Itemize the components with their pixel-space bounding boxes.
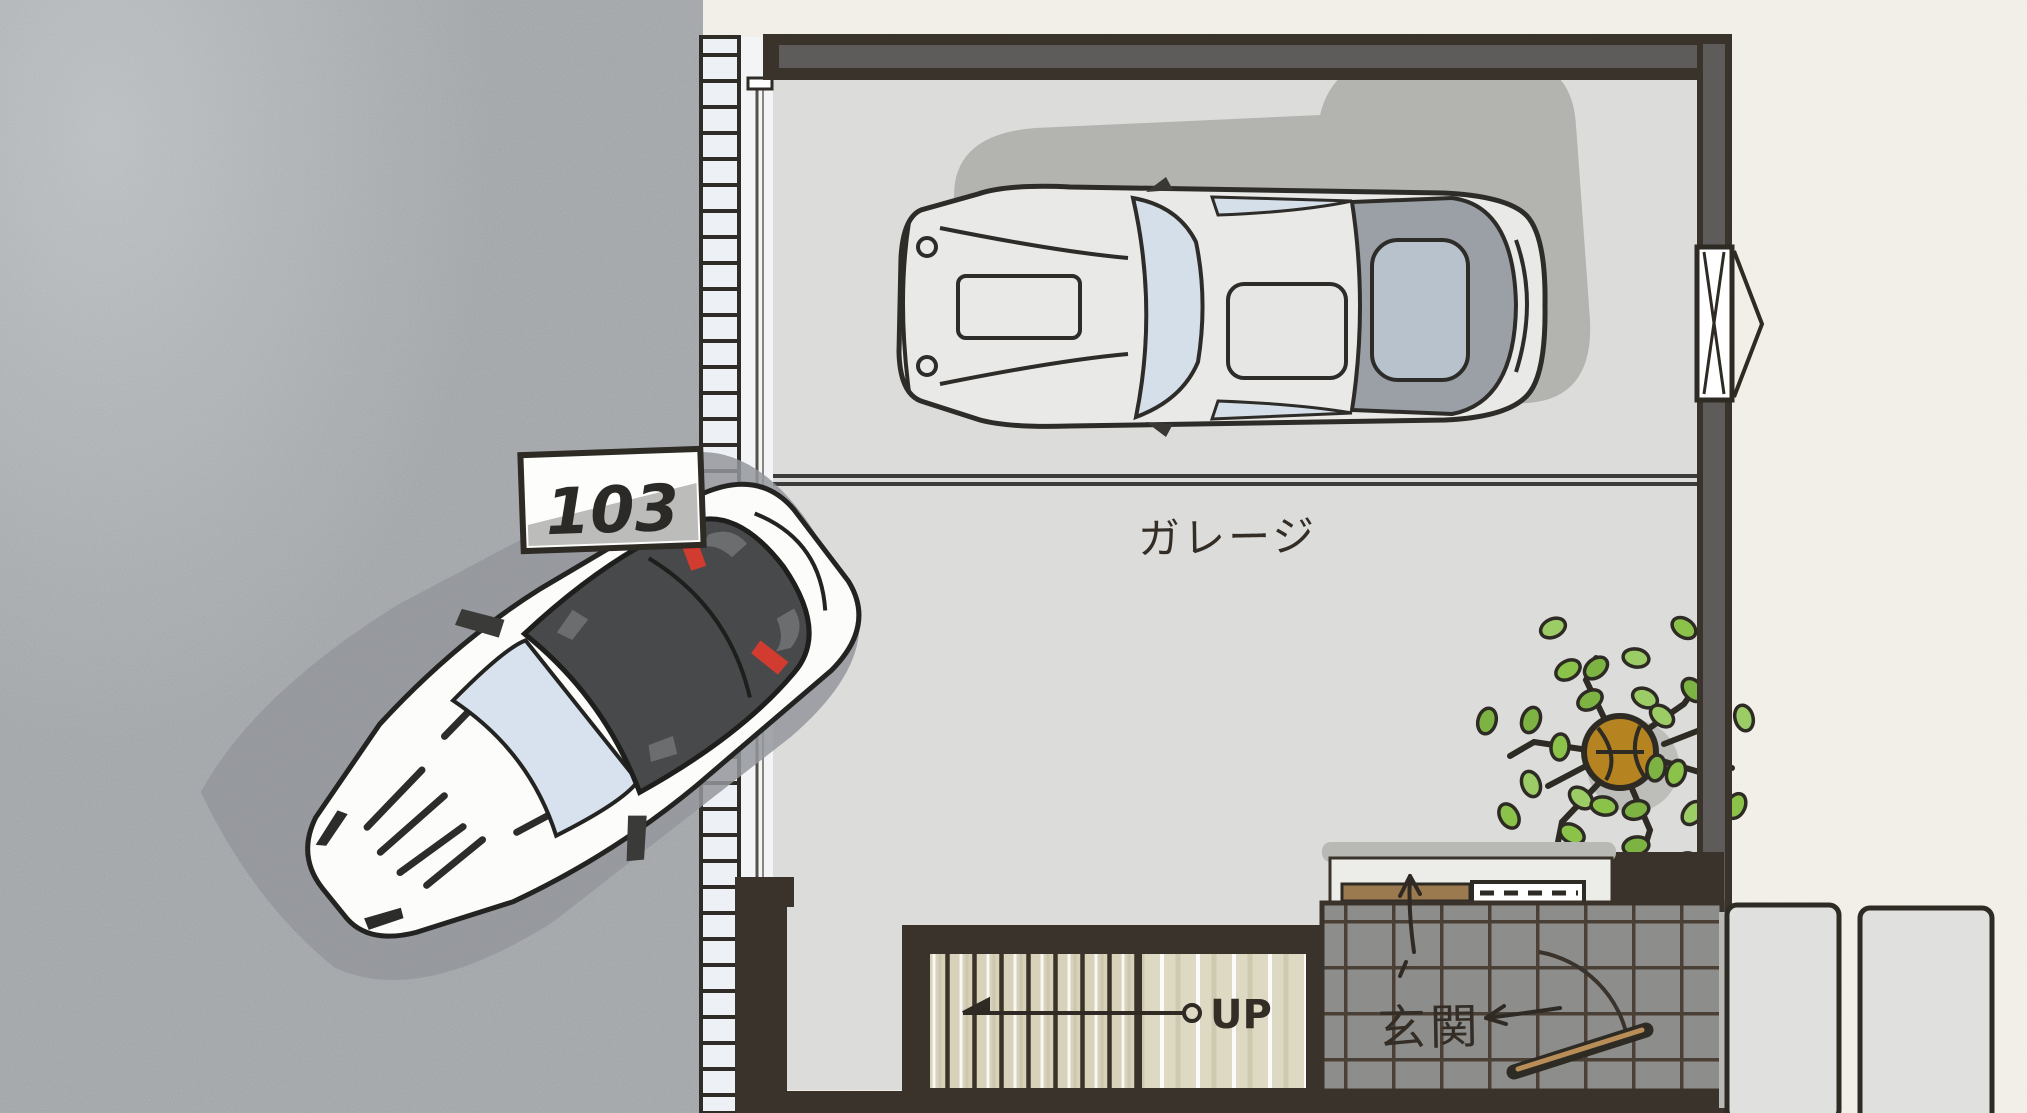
floor-plan-canvas: ガレージ — [0, 0, 2027, 1113]
stair-treads — [928, 952, 1140, 1090]
unit-number: 103 — [544, 472, 680, 551]
shoe-cabinet-threshold — [1330, 858, 1612, 904]
right-wall — [1697, 34, 1732, 926]
unit-number-sign: 103 — [520, 449, 703, 551]
stairs-up: UP — [902, 925, 1330, 1113]
garage-label: ガレージ — [1138, 511, 1318, 563]
stepping-stone — [1727, 905, 1839, 1113]
lower-left-wall — [735, 877, 794, 1113]
floor-plan-illustration: ガレージ — [0, 0, 2027, 1113]
top-wall — [763, 34, 1732, 80]
up-label: UP — [1210, 992, 1272, 1038]
entrance-label: 玄関 — [1377, 999, 1482, 1057]
stepping-stone — [1860, 908, 1992, 1113]
